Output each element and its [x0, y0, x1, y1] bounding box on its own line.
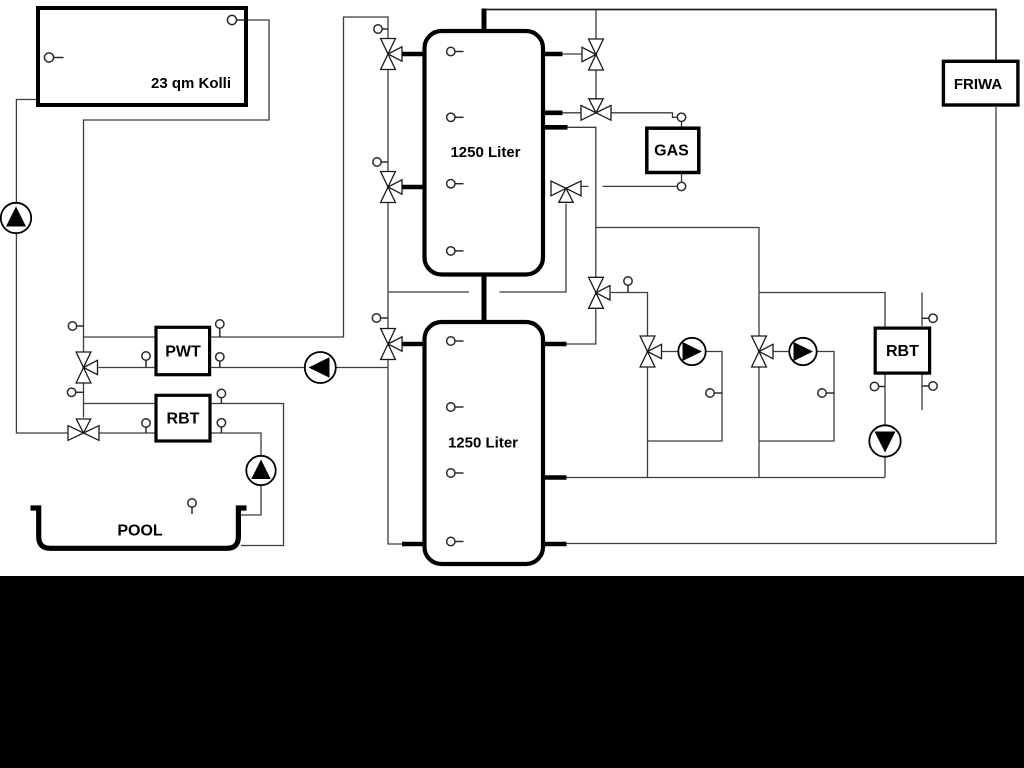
svg-text:FRIWA: FRIWA	[954, 76, 1002, 93]
svg-text:23 qm Kolli: 23 qm Kolli	[151, 75, 231, 92]
svg-text:1250 Liter: 1250 Liter	[450, 144, 520, 161]
svg-text:POOL: POOL	[117, 523, 163, 540]
svg-text:GAS: GAS	[654, 143, 689, 160]
svg-text:RBT: RBT	[886, 343, 919, 360]
svg-text:PWT: PWT	[165, 344, 201, 361]
svg-text:RBT: RBT	[167, 411, 200, 428]
svg-text:1250 Liter: 1250 Liter	[448, 435, 518, 452]
